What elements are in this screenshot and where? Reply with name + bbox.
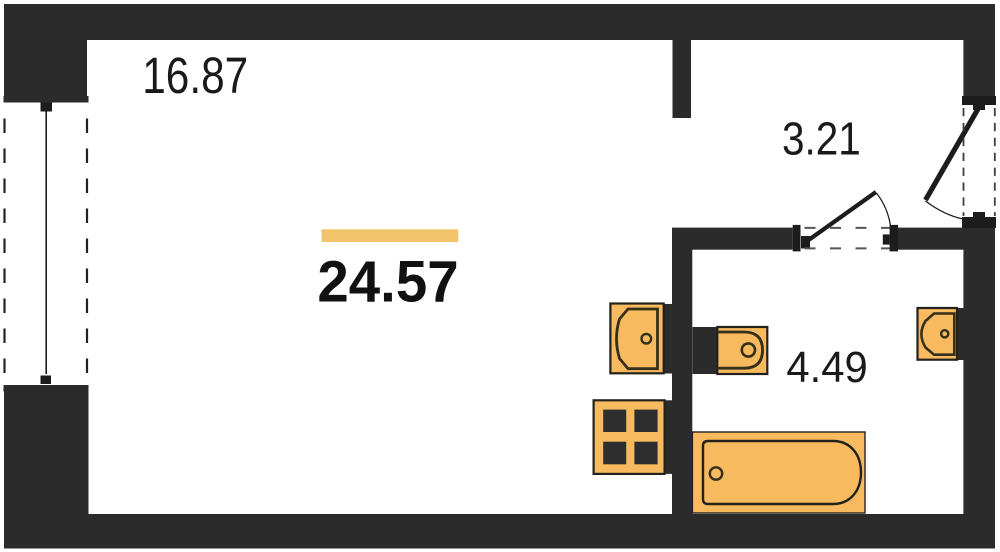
svg-text:4.49: 4.49 [786,343,867,392]
svg-text:3.21: 3.21 [782,114,861,165]
svg-text:16.87: 16.87 [142,47,248,104]
svg-text:24.57: 24.57 [317,250,458,315]
